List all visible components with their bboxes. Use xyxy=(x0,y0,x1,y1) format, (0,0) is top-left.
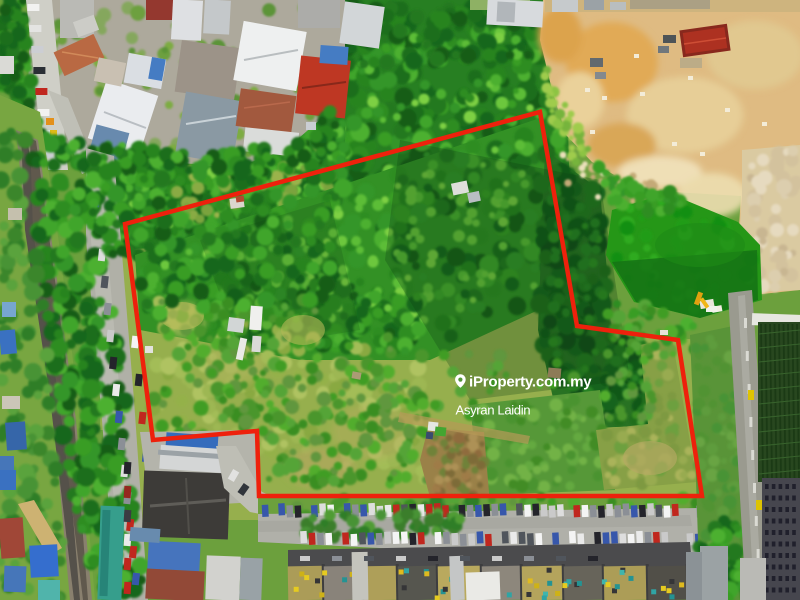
svg-text:iProperty.com.my: iProperty.com.my xyxy=(469,373,592,390)
svg-text:Asyran Laidin: Asyran Laidin xyxy=(456,402,531,417)
